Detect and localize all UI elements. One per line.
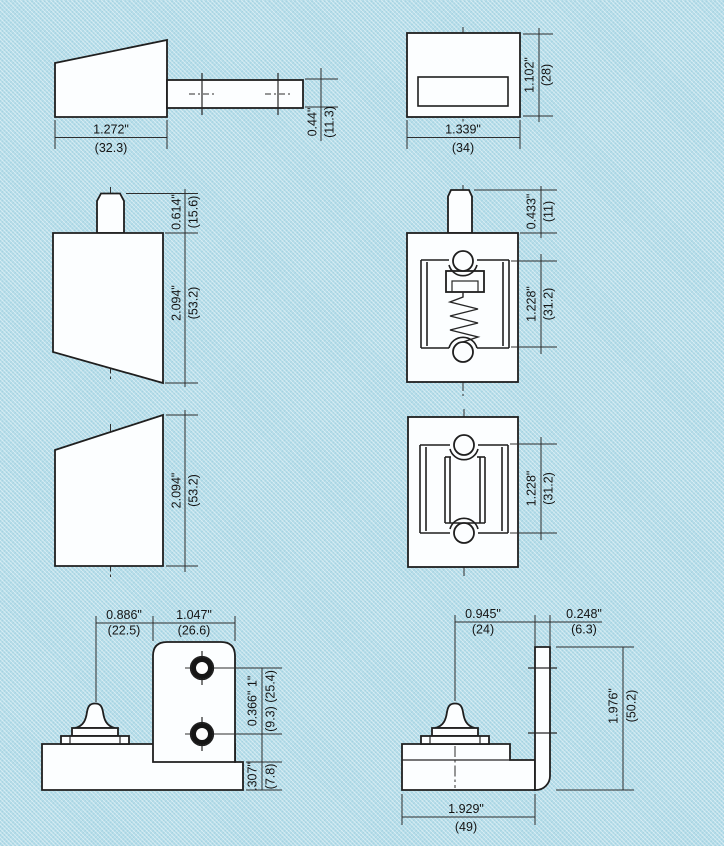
dim-label-holes-mm: (9.3) (25.4) [263,670,277,732]
dim-label-thickness-in: 0.248" [566,607,602,621]
view-bracket-b: 0.945" (24) 0.248" (6.3) 1.976" (50.2) 1… [402,607,638,834]
dim-label-width-mm: (32.3) [95,141,128,155]
dim-label-body-in: 2.094" [169,285,183,321]
top-pin [454,435,474,455]
dim-label-height-mm: (28) [539,64,553,86]
dim-label-stem-mm: (15.6) [186,196,200,229]
knob-washer-upper [432,728,478,736]
bottom-pin [454,523,474,543]
dim-label-stem-in: 0.433" [524,194,538,230]
dim-label-height-mm: (50.2) [624,690,638,723]
dim-label-plate-in: 1.047" [176,608,212,622]
top-pin [453,251,473,271]
dim-label-width-in: 1.339" [445,123,481,137]
height-dimension-lines [556,647,634,790]
dim-label-knob-mm: (24) [472,623,494,637]
latch-hardware-drawing: 1.272" (32.3) 0.44" (11.3) 1.339" (34) 1… [0,0,724,846]
dim-label-body-mm: (53.2) [186,287,200,320]
view-housing-face: 1.339" (34) 1.102" (28) [407,27,553,155]
dim-label-plate-mm: (26.6) [178,624,211,638]
bolt-plate-outline [53,233,163,383]
dim-label-knob-in: 0.945" [465,607,501,621]
dim-label-frame-mm: (31.2) [541,288,555,321]
dim-label-rod-mm: (11.3) [322,106,336,138]
base-outline [402,744,535,790]
view-bolt-retracted: 1.272" (32.3) 0.44" (11.3) [55,40,338,155]
knob-washer-lower [61,736,129,744]
pivot-knob [75,704,115,729]
dim-label-rod-in: 0.44" [305,108,319,137]
dim-label-length-mm: (49) [455,820,477,834]
dim-label-body-mm: (53.2) [186,474,200,507]
knob-washer-lower [421,736,489,744]
dim-label-frame-in: 1.228" [524,471,538,507]
knob-washer-upper [72,728,118,736]
dim-label-stem-mm: (11) [541,201,555,222]
stem-outline [97,194,124,234]
dim-label-frame-mm: (31.2) [541,472,555,505]
view-bolt-plate: 2.094" (53.2) [55,410,200,580]
dim-label-offset-in: 0.886" [106,608,142,622]
dim-label-length-in: 1.929" [448,802,484,816]
dim-label-stem-in: 0.614" [169,194,183,230]
view-bolt-extended: 0.614" (15.6) 2.094" (53.2) [53,187,200,387]
bolt-plate-outline [55,415,163,566]
dim-label-frame-in: 1.228" [524,286,538,322]
bottom-pin [453,342,473,362]
stem-outline [448,190,472,233]
dim-label-width-mm: (34) [452,141,474,155]
dim-label-width-in: 1.272" [93,123,129,137]
dim-label-offset-mm: (22.5) [108,624,141,638]
dim-label-height-in: 1.976" [606,688,620,724]
dim-label-body-in: 2.094" [169,473,183,509]
view-bracket-a: 0.886" (22.5) 1.047" (26.6) 0.366" 1" (9… [42,608,282,791]
bolt-body-outline [55,40,167,117]
dim-label-base-in: .307" [245,762,259,791]
dim-label-base-mm: (7.8) [263,764,277,790]
housing-outline [407,33,520,117]
technical-drawing-page: 1.272" (32.3) 0.44" (11.3) 1.339" (34) 1… [0,0,724,846]
view-latch-spring: 0.433" (11) 1.228" (31.2) [407,185,557,396]
dim-label-thickness-mm: (6.3) [571,623,597,637]
pivot-knob [435,704,475,729]
dim-label-holes-in: 0.366" 1" [245,676,259,727]
dim-label-height-in: 1.102" [522,57,536,93]
view-latch-face: 1.228" (31.2) [408,409,557,578]
